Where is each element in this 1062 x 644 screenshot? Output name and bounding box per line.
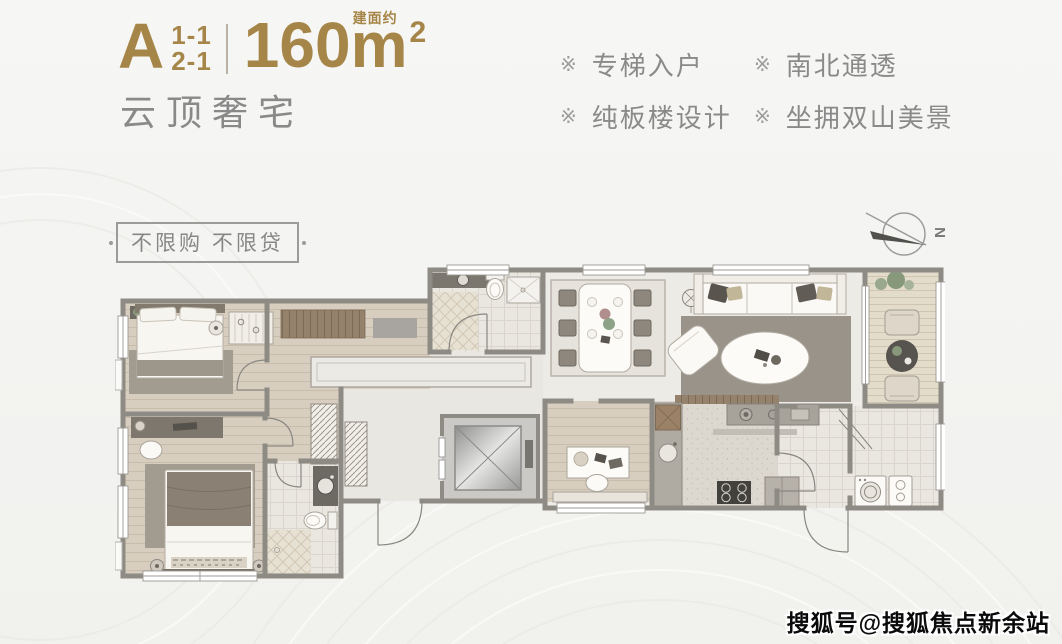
sofa-armrest (837, 274, 846, 314)
feature-item: ※ 坐拥双山美景 (754, 98, 954, 135)
reference-mark-icon: ※ (560, 104, 579, 129)
living-room (665, 274, 851, 402)
feature-label: 专梯入户 (592, 46, 704, 83)
dining-chair (634, 290, 651, 306)
window-seat (553, 492, 647, 502)
chair (140, 441, 162, 459)
area-unit-wrap: 建面约 m (351, 14, 408, 76)
plate (614, 330, 623, 339)
elevator-rail (525, 440, 533, 468)
bed-throw (137, 360, 223, 376)
policy-badge-label: 不限购 不限贷 (131, 232, 284, 255)
dining-chair (634, 320, 651, 336)
unit-code-top: 1-1 (171, 22, 212, 48)
balcony-table (886, 340, 918, 372)
feature-list: ※ 专梯入户 ※ 南北通透 ※ 纯板楼设计 ※ 坐拥双山美景 (560, 46, 954, 135)
elevator (439, 416, 538, 501)
balcony-chair (885, 376, 919, 401)
storage-cabinet (345, 422, 367, 486)
page: A 1-1 2-1 160 建面约 m 2 云顶奢宅 ※ 专梯入户 ※ 南北通透… (0, 0, 1062, 644)
plate (588, 298, 597, 307)
plate (588, 330, 597, 339)
sofa-armrest (694, 274, 703, 314)
toilet-tank (328, 512, 337, 529)
feature-label: 南北通透 (786, 46, 898, 83)
desk-lamp (574, 452, 588, 466)
doormat (373, 318, 417, 338)
dining-room (551, 280, 665, 376)
sink (458, 275, 469, 286)
pillow (726, 286, 743, 301)
plate (614, 298, 623, 307)
reference-mark-icon: ※ (754, 52, 773, 77)
toilet (487, 279, 504, 300)
feature-item: ※ 南北通透 (754, 46, 954, 83)
reference-mark-icon: ※ (754, 104, 773, 129)
balcony-chair (885, 310, 919, 335)
pillow (816, 286, 833, 301)
hall-cabinet (281, 310, 365, 338)
elevator-door (439, 460, 445, 479)
dining-chair (559, 350, 576, 366)
hall-door (378, 501, 422, 545)
stove (717, 481, 751, 504)
shoe-cabinet (311, 404, 337, 464)
plant (904, 280, 914, 290)
area-value: 160 (244, 14, 351, 76)
kitchen-sink (659, 444, 677, 462)
entry-door (804, 508, 848, 552)
area-figure: 160 建面约 m 2 (244, 14, 426, 76)
chair (586, 475, 608, 492)
unit-title: A 1-1 2-1 160 建面约 m 2 (118, 16, 426, 76)
badge-dot (302, 241, 306, 245)
unit-letter: A (118, 16, 164, 76)
toilet (304, 512, 326, 529)
plant (887, 271, 905, 289)
unit-code-bottom: 2-1 (171, 48, 212, 74)
ac-ledge (115, 360, 122, 390)
duvet (167, 472, 251, 526)
title-divider (226, 24, 228, 74)
desk-lamp (135, 421, 145, 431)
console-table (311, 357, 531, 387)
island-ledge (713, 429, 797, 435)
badge-dot (109, 241, 113, 245)
dining-chair (559, 290, 576, 306)
area-prefix: 建面约 (353, 8, 398, 28)
area-exponent: 2 (409, 16, 426, 50)
feature-label: 纯板楼设计 (592, 98, 732, 135)
dining-chair (559, 320, 576, 336)
reference-mark-icon: ※ (560, 52, 579, 77)
subtitle: 云顶奢宅 (120, 84, 304, 136)
compass: N (858, 198, 968, 272)
utility-room (855, 476, 912, 506)
unit-codes: 1-1 2-1 (171, 22, 212, 74)
elevator-door (439, 438, 445, 457)
pillow (180, 307, 217, 322)
feature-item: ※ 专梯入户 (560, 46, 754, 83)
feature-item: ※ 纯板楼设计 (560, 98, 754, 135)
feature-label: 坐拥双山美景 (786, 98, 954, 135)
pillow (140, 307, 177, 322)
ac-ledge (115, 542, 122, 570)
sink (318, 478, 334, 494)
plant (875, 278, 887, 290)
plant (603, 318, 615, 330)
compass-icon (858, 198, 968, 272)
flowers (600, 309, 611, 320)
pillow-band (171, 557, 247, 568)
floor-plan-image (115, 256, 945, 592)
plant (892, 346, 902, 356)
policy-badge: 不限购 不限贷 (116, 222, 299, 263)
bar-counter (675, 395, 779, 404)
compass-north-label: N (931, 227, 948, 238)
dining-chair (634, 350, 651, 366)
island-sink (791, 409, 809, 420)
watermark: 搜狐号@搜狐焦点新余站 (787, 604, 1050, 638)
